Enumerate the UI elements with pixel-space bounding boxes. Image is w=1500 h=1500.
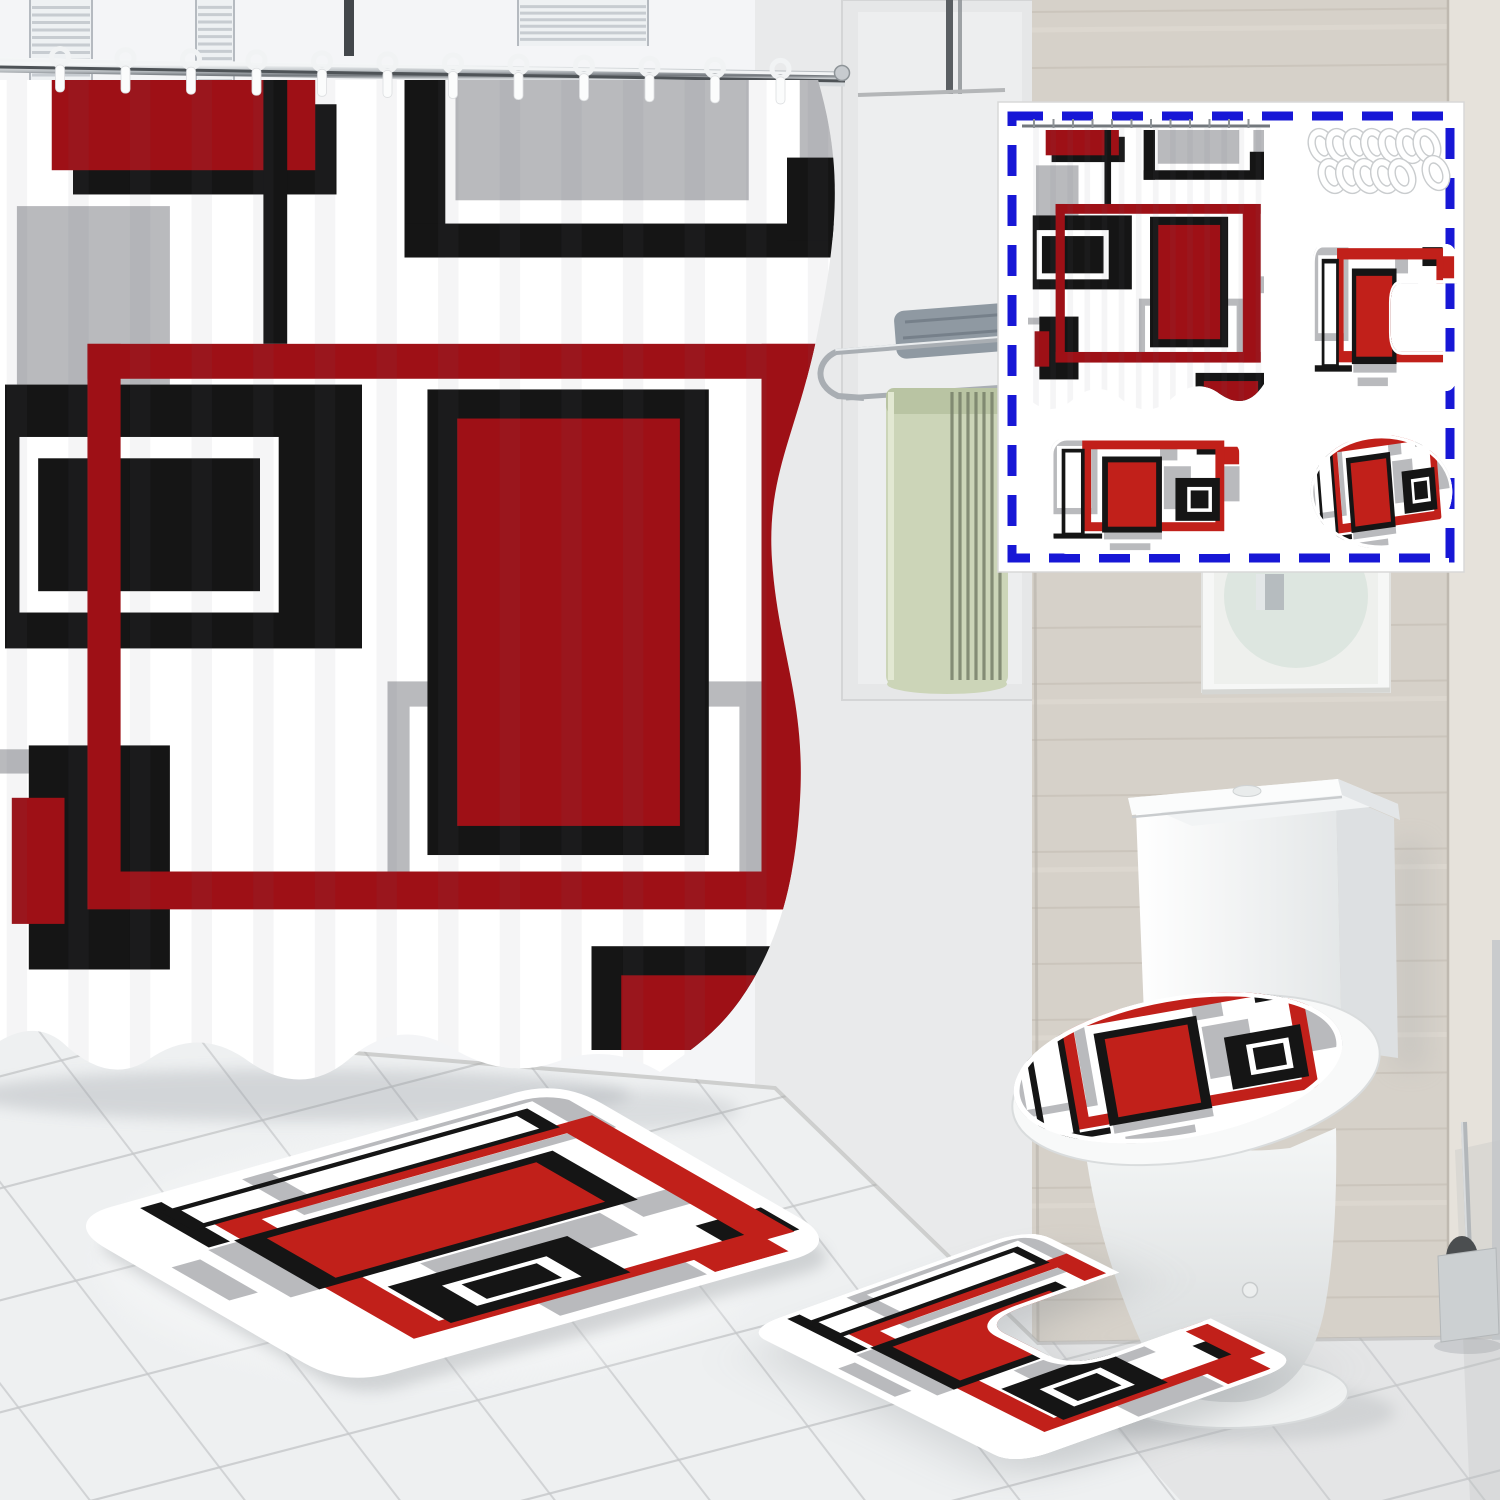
inset-shower-rings	[1303, 124, 1455, 197]
hook-clip	[449, 72, 458, 99]
towel-stripes	[952, 392, 1000, 680]
hook-clip	[187, 67, 196, 94]
hanging-towel-green	[886, 388, 1008, 694]
hook-clip	[514, 73, 523, 100]
faucet-highlight	[1256, 574, 1265, 610]
shower-curtain	[0, 70, 855, 1118]
bathroom-product-photo	[0, 0, 1500, 1500]
tank-button	[1233, 786, 1261, 797]
mirror-shelf	[1202, 690, 1390, 692]
hook-clip	[383, 70, 392, 97]
hook-clip	[121, 66, 130, 93]
brush-holder	[1438, 1248, 1499, 1342]
bolt-cap	[1243, 1283, 1258, 1298]
hook-clip	[56, 65, 65, 92]
towel-top-fold	[886, 388, 1008, 414]
towel-bottom	[887, 674, 1007, 694]
hook-clip	[580, 74, 589, 101]
rod-end-cap	[835, 66, 850, 81]
hook-clip	[776, 77, 785, 104]
hook-clip	[318, 69, 327, 96]
inset-panel	[998, 102, 1471, 577]
towel-body	[886, 388, 1008, 686]
bathroom-scene	[0, 0, 1500, 1500]
window-frame-bar	[946, 0, 953, 94]
hook-clip	[711, 76, 720, 103]
window-frame-dark	[344, 0, 354, 56]
hook-clip	[645, 75, 654, 102]
inset-curtain	[1023, 127, 1268, 421]
window-frame-bar2	[958, 0, 962, 94]
inset-bath-mat	[1035, 421, 1263, 573]
hook-clip	[252, 68, 261, 95]
